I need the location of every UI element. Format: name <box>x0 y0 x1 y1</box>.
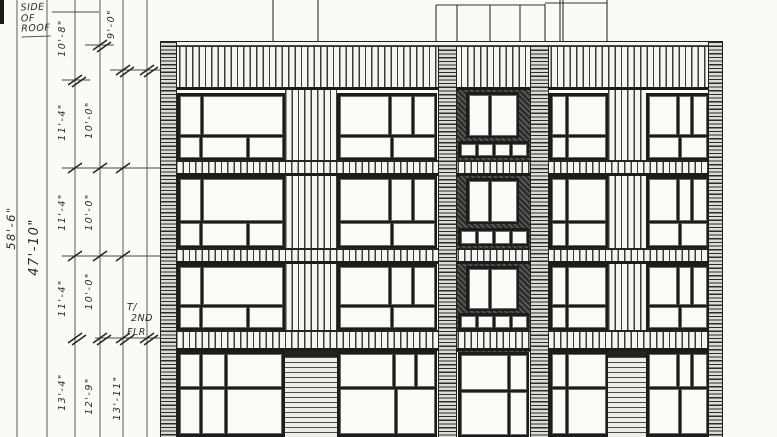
window-pane <box>249 223 283 245</box>
bay-1-window-floor4-lower-sash <box>180 137 283 157</box>
window-pane <box>414 96 435 136</box>
bay-3-window-floor2-upper-sash <box>552 267 606 306</box>
bay-1-window-floor3-upper-sash <box>180 179 283 222</box>
dimension-tick <box>144 67 158 77</box>
bay-4-ground-storefront-lower-sash <box>649 389 707 435</box>
window-pane <box>391 267 412 306</box>
window-pane <box>649 179 677 222</box>
bay-4-window-floor4-upper-sash <box>649 96 707 136</box>
window-pane <box>469 181 490 222</box>
window-pane <box>340 96 390 136</box>
bay-1-ground-storefront-upper-sash <box>180 354 283 387</box>
side-of-roof-label: SIDE OF ROOF <box>20 3 50 37</box>
window-pane <box>552 354 566 387</box>
window-pane <box>203 267 283 306</box>
window-pane <box>391 179 412 222</box>
window-pane <box>552 389 566 435</box>
window-pane <box>510 392 527 435</box>
bay-1-window-floor2-lower-sash <box>180 307 283 327</box>
window-pane <box>249 137 283 157</box>
bay-3-ground-storefront <box>549 351 608 437</box>
side-of-roof-line3: ROOF <box>21 23 50 35</box>
window-pane <box>340 137 392 157</box>
dimension-tick <box>97 42 111 52</box>
window-pane <box>491 269 516 309</box>
window-pane <box>340 179 390 222</box>
bay-2-ground-storefront-lower-sash <box>340 389 435 435</box>
window-pane <box>249 307 283 327</box>
window-pane <box>180 267 201 306</box>
elevation-sheet: SIDE OF ROOF T/ 2ND FLR. 58'-6"47'-10"10… <box>0 0 777 437</box>
floor-to-floor-heights-label: 11'-4" <box>57 279 68 317</box>
siding-pier-2 <box>608 90 646 351</box>
siding-pier-2-ground-slats <box>608 351 646 437</box>
window-pane <box>693 96 707 136</box>
bay-2-ground-storefront-upper-sash <box>340 354 435 387</box>
window-pane <box>552 307 566 327</box>
bay-1-window-floor4-upper-sash <box>180 96 283 136</box>
window-head-heights-label: 10'-0" <box>84 193 95 231</box>
window-pane <box>512 316 527 328</box>
window-pane <box>391 96 412 136</box>
dimension-tick <box>97 335 111 345</box>
window-pane <box>510 355 527 390</box>
window-pane <box>478 144 493 156</box>
window-pane <box>202 389 224 435</box>
floor-label-line3: FLR. <box>127 324 153 339</box>
bay-4-window-floor2 <box>646 264 709 330</box>
window-pane <box>202 307 247 327</box>
window-pane <box>461 392 508 435</box>
window-pane <box>679 267 691 306</box>
bay-4-window-floor3 <box>646 176 709 248</box>
bay-4-window-floor2-lower-sash <box>649 307 707 327</box>
window-pane <box>552 223 566 245</box>
bay-2-window-floor3-lower-sash <box>340 223 435 245</box>
window-pane <box>693 179 707 222</box>
bay-3-window-floor4-upper-sash <box>552 96 606 136</box>
bay-2-window-floor2-lower-sash <box>340 307 435 327</box>
window-pane <box>568 354 606 387</box>
window-pane <box>202 223 247 245</box>
left-edge-pier <box>160 42 177 437</box>
siding-pier-1 <box>285 90 337 351</box>
window-pane <box>180 389 201 435</box>
bay-4-window-floor4-lower-sash <box>649 137 707 157</box>
floor-to-floor-heights-label: 10'-8" <box>57 19 68 57</box>
window-pane <box>203 96 283 136</box>
window-pane <box>461 355 508 390</box>
window-pane <box>649 354 677 387</box>
window-pane <box>681 223 706 245</box>
bay-3-window-floor2-lower-sash <box>552 307 606 327</box>
stack-window-floor2-upper-sash <box>469 269 517 309</box>
window-pane <box>679 96 691 136</box>
second-floor-label: T/ 2ND FLR. <box>127 303 153 339</box>
window-pane <box>649 223 680 245</box>
window-pane <box>227 354 283 387</box>
stack-rail-floor2 <box>458 313 529 330</box>
bay-2-window-floor2 <box>337 264 437 330</box>
bay-3-window-floor4-lower-sash <box>552 137 606 157</box>
window-pane <box>568 307 606 327</box>
window-pane <box>469 269 490 309</box>
stack-left-pier <box>438 46 457 437</box>
window-pane <box>649 137 680 157</box>
window-pane <box>568 267 606 306</box>
window-head-heights-label: 10'-0" <box>84 101 95 139</box>
bay-4-ground-storefront <box>646 351 709 437</box>
bay-4-window-floor2-upper-sash <box>649 267 707 306</box>
siding-pier-1-ground-slats <box>285 351 337 437</box>
stack-window-floor2 <box>466 266 519 311</box>
bay-1-ground-storefront <box>177 351 285 437</box>
stack-window-floor3 <box>466 178 519 224</box>
bay-3-window-floor2 <box>549 264 608 330</box>
stack-window-floor4-upper-sash <box>469 95 517 136</box>
bay-2-ground-storefront <box>337 351 437 437</box>
overall-dimension-label: 47'-10" <box>27 218 42 276</box>
misc-heights-label: 13'-11" <box>112 375 123 420</box>
window-pane <box>512 231 527 244</box>
dimension-tick <box>120 67 134 77</box>
window-pane <box>679 354 691 387</box>
window-pane <box>495 231 510 244</box>
window-head-heights-label: 10'-0" <box>84 272 95 310</box>
bay-1-window-floor4 <box>177 93 285 160</box>
window-pane <box>649 307 680 327</box>
bay-2-window-floor4 <box>337 93 437 160</box>
floor-label-line2: 2ND <box>127 314 153 325</box>
floor-to-floor-heights-label: 11'-4" <box>57 193 68 231</box>
bay-1-window-floor2-upper-sash <box>180 267 283 306</box>
bay-1-window-floor2 <box>177 264 285 330</box>
window-pane <box>397 389 435 435</box>
window-pane <box>180 307 201 327</box>
overall-dimension-label: 58'-6" <box>4 206 18 250</box>
window-pane <box>340 267 390 306</box>
window-pane <box>478 316 493 328</box>
window-pane <box>202 137 247 157</box>
bay-3-window-floor3-upper-sash <box>552 179 606 222</box>
window-pane <box>491 95 516 136</box>
window-pane <box>340 389 395 435</box>
window-pane <box>180 179 201 222</box>
window-pane <box>393 223 434 245</box>
window-pane <box>340 307 392 327</box>
window-pane <box>461 316 476 328</box>
window-pane <box>649 389 680 435</box>
window-pane <box>180 137 201 157</box>
window-pane <box>340 354 393 387</box>
window-pane <box>202 354 224 387</box>
bay-2-window-floor2-upper-sash <box>340 267 435 306</box>
floor-label-line1: T/ <box>127 303 153 314</box>
window-pane <box>552 96 566 136</box>
window-pane <box>340 223 392 245</box>
window-pane <box>552 137 566 157</box>
bay-3-ground-storefront-lower-sash <box>552 389 606 435</box>
window-pane <box>203 179 283 222</box>
window-pane <box>568 179 606 222</box>
bay-4-window-floor3-upper-sash <box>649 179 707 222</box>
window-pane <box>395 354 416 387</box>
bay-3-ground-storefront-upper-sash <box>552 354 606 387</box>
window-pane <box>649 96 677 136</box>
bay-1-window-floor3-lower-sash <box>180 223 283 245</box>
stack-entry-door <box>458 352 529 437</box>
bay-4-window-floor3-lower-sash <box>649 223 707 245</box>
stack-entry-door-lower-sash <box>461 392 527 435</box>
bay-4-window-floor4 <box>646 93 709 160</box>
window-pane <box>417 354 434 387</box>
window-pane <box>469 95 490 136</box>
dimension-tick <box>72 77 86 87</box>
floor-to-floor-heights-label: 11'-4" <box>57 103 68 141</box>
window-pane <box>649 267 677 306</box>
window-pane <box>681 307 706 327</box>
stack-window-floor3-upper-sash <box>469 181 517 222</box>
window-pane <box>681 137 706 157</box>
window-pane <box>180 96 201 136</box>
window-pane <box>568 223 606 245</box>
bay-2-window-floor3 <box>337 176 437 248</box>
stack-rail-floor3-upper-sash <box>461 231 527 244</box>
window-pane <box>461 231 476 244</box>
bay-3-window-floor3 <box>549 176 608 248</box>
stack-rail-floor3 <box>458 228 529 246</box>
window-pane <box>393 137 434 157</box>
bay-4-ground-storefront-upper-sash <box>649 354 707 387</box>
stack-entry-door-upper-sash <box>461 355 527 390</box>
window-pane <box>693 267 707 306</box>
bay-2-window-floor4-lower-sash <box>340 137 435 157</box>
bay-3-window-floor3-lower-sash <box>552 223 606 245</box>
window-pane <box>495 144 510 156</box>
bay-3-window-floor4 <box>549 93 608 160</box>
window-pane <box>693 354 707 387</box>
bay-2-window-floor3-upper-sash <box>340 179 435 222</box>
window-pane <box>681 389 706 435</box>
stack-rail-floor2-upper-sash <box>461 316 527 328</box>
window-head-heights-label: 12'-9" <box>84 377 95 415</box>
bay-2-window-floor4-upper-sash <box>340 96 435 136</box>
floor-to-floor-heights-label: 13'-4" <box>57 373 68 411</box>
scan-edge-mark <box>0 0 4 24</box>
stack-right-pier <box>530 46 549 437</box>
misc-heights-label: 9'-0" <box>106 9 117 39</box>
window-pane <box>180 354 201 387</box>
window-pane <box>552 267 566 306</box>
window-pane <box>512 144 527 156</box>
stack-rail-floor4-upper-sash <box>461 144 527 156</box>
dimension-tick <box>72 335 86 345</box>
window-pane <box>414 179 435 222</box>
window-pane <box>679 179 691 222</box>
right-edge-pier <box>708 42 723 437</box>
window-pane <box>568 389 606 435</box>
window-pane <box>552 179 566 222</box>
window-pane <box>478 231 493 244</box>
window-pane <box>461 144 476 156</box>
window-pane <box>568 137 606 157</box>
window-pane <box>491 181 516 222</box>
window-pane <box>414 267 435 306</box>
stack-rail-floor4 <box>458 141 529 158</box>
bay-1-window-floor3 <box>177 176 285 248</box>
stack-window-floor4 <box>466 92 519 138</box>
bay-1-ground-storefront-lower-sash <box>180 389 283 435</box>
window-pane <box>568 96 606 136</box>
window-pane <box>393 307 434 327</box>
window-pane <box>180 223 201 245</box>
window-pane <box>227 389 283 435</box>
window-pane <box>495 316 510 328</box>
